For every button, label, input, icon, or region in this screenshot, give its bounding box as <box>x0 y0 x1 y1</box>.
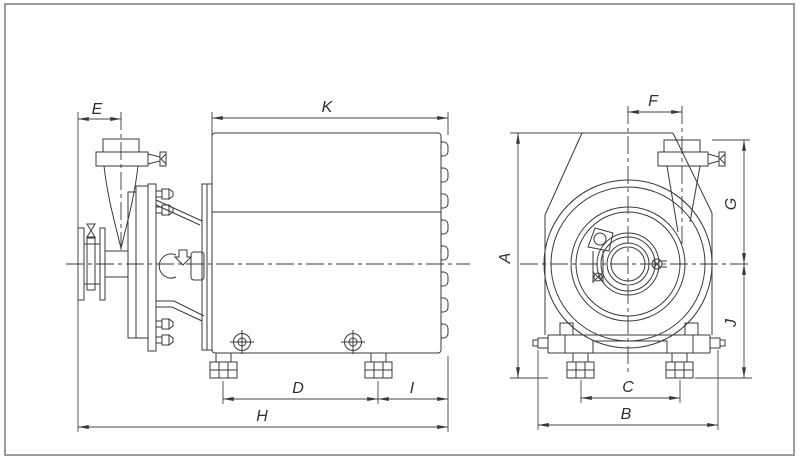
dim-label-B: B <box>621 406 632 423</box>
dim-label-J: J <box>723 318 740 328</box>
side-view <box>78 133 448 378</box>
motor <box>202 133 448 378</box>
front-foot <box>210 353 237 378</box>
pump-technical-drawing: E K D I H F A G J C B <box>0 0 800 463</box>
motor-mount-bolt <box>230 330 254 354</box>
motor-body <box>212 133 441 353</box>
dim-label-I: I <box>410 380 415 397</box>
casing-bolt <box>156 335 173 345</box>
dim-label-C: C <box>622 379 634 396</box>
base-bracket <box>533 323 725 378</box>
base-side-bolt <box>533 338 548 348</box>
dim-label-A: A <box>497 253 514 265</box>
drain-arrow-icon <box>175 250 191 265</box>
dim-label-H: H <box>256 408 268 425</box>
dim-label-K: K <box>322 99 334 116</box>
dim-label-D: D <box>292 380 304 397</box>
base-side-bolt <box>710 338 725 348</box>
casing-bolt <box>156 189 173 199</box>
clamp-wingnut-icon <box>87 224 95 237</box>
pump-casing-side <box>128 184 173 351</box>
front-view <box>533 133 725 378</box>
dimensions <box>78 112 752 432</box>
extension-lines <box>78 112 752 432</box>
dim-label-E: E <box>92 101 103 118</box>
sheet-frame <box>5 4 794 455</box>
casing-outline <box>545 133 712 335</box>
suction-clamp <box>588 228 667 283</box>
lantern-bracket <box>156 200 204 321</box>
motor-cooling-ribs <box>441 142 448 338</box>
right-foot <box>666 353 693 378</box>
rear-foot <box>365 353 392 378</box>
left-foot <box>567 353 594 378</box>
motor-mount-bolt <box>341 330 365 354</box>
discharge-port-front <box>658 140 725 232</box>
casing-bolt <box>156 319 173 329</box>
dim-label-G: G <box>723 198 740 210</box>
shaft-opening <box>159 254 176 278</box>
dim-label-F: F <box>648 93 659 110</box>
suction-port-assembly <box>78 224 128 300</box>
